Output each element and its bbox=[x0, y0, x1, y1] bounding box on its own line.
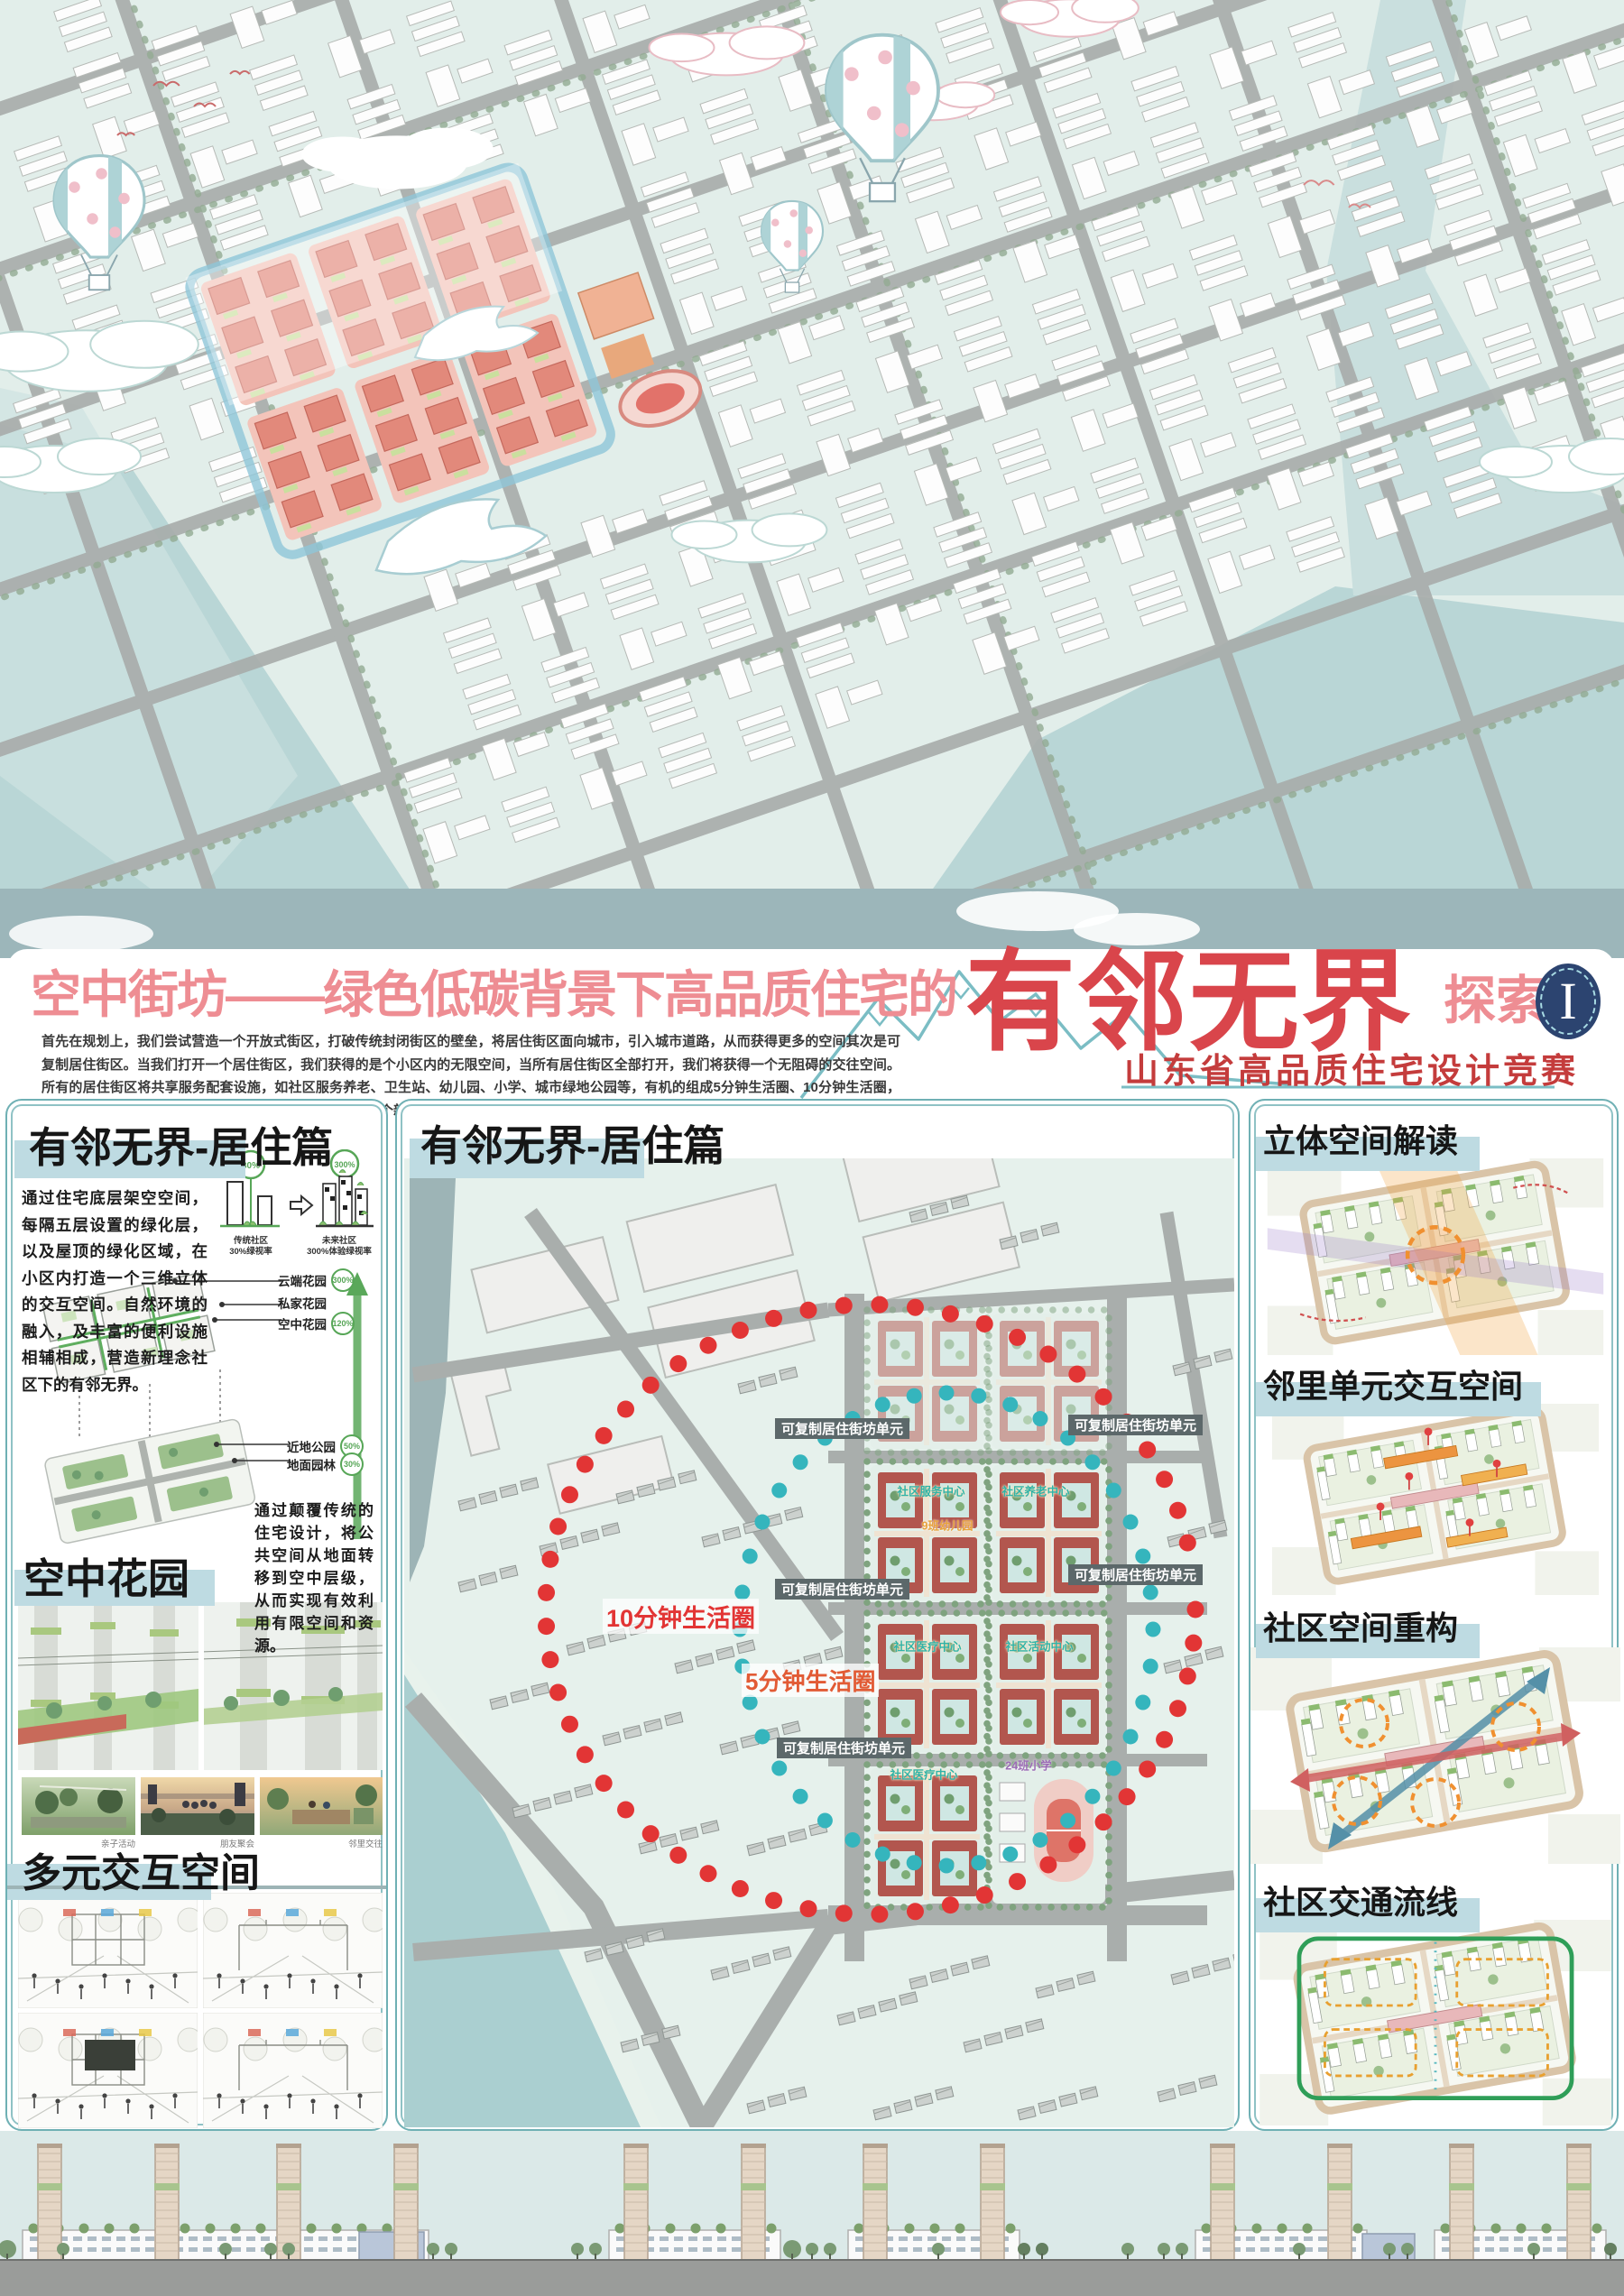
photo-neighbor-interaction bbox=[260, 1777, 383, 1835]
facility-activity-center: 社区活动中心 bbox=[1005, 1637, 1073, 1655]
right-panel-analysis: 立体空间解读 邻里单元交互空间 社区空间重构 社区交通流线 bbox=[1249, 1099, 1619, 2131]
ratio-300: 300% bbox=[334, 1160, 355, 1169]
life-circle-map bbox=[404, 1158, 1234, 2127]
section-title-3d-space: 立体空间解读 bbox=[1263, 1115, 1458, 1162]
left-panel-residential: 有邻无界-居住篇 通过住宅底层架空空间，每隔五层设置的绿化层，以及屋顶的绿化区域… bbox=[5, 1099, 388, 2131]
unit-label: 可复制居住街坊单元 bbox=[775, 1418, 909, 1439]
diagram-space-restructure bbox=[1250, 1646, 1620, 1866]
five-minute-label: 5分钟生活圈 bbox=[742, 1664, 879, 1697]
middle-panel-title: 有邻无界-居住篇 bbox=[420, 1113, 724, 1173]
diagram-neighbor-interaction bbox=[1250, 1404, 1620, 1595]
title-prefix: 空中街坊——绿色低碳背景下高品质住宅的 bbox=[31, 954, 956, 1028]
competition-poster: 空中街坊——绿色低碳背景下高品质住宅的 有邻无界 探索 I 首先在规划上，我们尝… bbox=[0, 0, 1624, 2296]
section-title-space-restructure: 社区空间重构 bbox=[1263, 1602, 1458, 1649]
section-title-traffic-flow: 社区交通流线 bbox=[1263, 1876, 1458, 1923]
unit-label: 可复制居住街坊单元 bbox=[775, 1579, 909, 1600]
photo-friends-gathering bbox=[141, 1777, 254, 1835]
facility-medical-center: 社区医疗中心 bbox=[893, 1637, 961, 1655]
render-outdoor-cinema bbox=[18, 2013, 198, 2128]
render-plaza-canopy bbox=[203, 2013, 383, 2128]
facility-medical-center-2: 社区医疗中心 bbox=[890, 1766, 957, 1783]
left-intro-paragraph: 通过住宅底层架空空间，每隔五层设置的绿化层，以及屋顶的绿化区域，在小区内打造一个… bbox=[22, 1185, 208, 1398]
facility-elder-center: 社区养老中心 bbox=[1001, 1482, 1069, 1499]
left-panel-title: 有邻无界-居住篇 bbox=[29, 1115, 333, 1175]
callout-ground-landscape: 地面园林30% bbox=[287, 1452, 364, 1476]
interaction-space-title: 多元交互空间 bbox=[22, 1840, 260, 1898]
diagram-traffic-flow bbox=[1250, 1920, 1620, 2125]
render-street-market bbox=[203, 1893, 383, 2008]
unit-label: 可复制居住街坊单元 bbox=[1068, 1415, 1203, 1435]
unit-label: 可复制居住街坊单元 bbox=[777, 1738, 911, 1758]
left-second-paragraph: 通过颠覆传统的住宅设计，将公共空间从地面转移到空中层级，从而实现有效利用有限空间… bbox=[254, 1499, 374, 1657]
title-suffix: 探索 bbox=[1444, 958, 1548, 1034]
unit-label: 可复制居住街坊单元 bbox=[1068, 1564, 1203, 1585]
render-street-scaffold bbox=[18, 1893, 198, 2008]
ground-band bbox=[0, 2260, 1624, 2296]
aerial-masterplan-illustration bbox=[0, 0, 1624, 958]
diagram-3d-space bbox=[1250, 1158, 1620, 1355]
section-title-neighbor-unit: 邻里单元交互空间 bbox=[1263, 1360, 1523, 1407]
competition-name: 山东省高品质住宅设计竞赛 bbox=[1124, 1043, 1579, 1093]
callout-sky-garden: 空中花园120% bbox=[278, 1312, 355, 1335]
phase-badge: I bbox=[1536, 964, 1601, 1039]
chart-label-traditional: 传统社区 30%绿视率 bbox=[209, 1236, 292, 1258]
facility-service-center: 社区服务中心 bbox=[897, 1482, 964, 1499]
photo-family-activity bbox=[22, 1777, 135, 1835]
phase-number: I bbox=[1559, 975, 1576, 1028]
title-panel: 空中街坊——绿色低碳背景下高品质住宅的 有邻无界 探索 I 首先在规划上，我们尝… bbox=[7, 949, 1615, 1102]
ten-minute-label: 10分钟生活圈 bbox=[603, 1599, 759, 1634]
facility-primary-school: 24班小学 bbox=[1005, 1757, 1051, 1774]
photo-caption: 邻里交往 bbox=[260, 1837, 383, 1849]
sky-garden-title: 空中花园 bbox=[23, 1546, 189, 1606]
chart-label-future: 未来社区 300%体验绿视率 bbox=[294, 1236, 384, 1258]
callout-private-garden: 私家花园 bbox=[278, 1294, 327, 1312]
middle-panel-masterplan: 有邻无界-居住篇 bbox=[395, 1099, 1240, 2131]
building-elevation-strip bbox=[0, 2131, 1624, 2296]
callout-cloud-garden: 云端花园300% bbox=[278, 1268, 355, 1292]
facility-kindergarten: 9班幼儿园 bbox=[922, 1517, 973, 1534]
